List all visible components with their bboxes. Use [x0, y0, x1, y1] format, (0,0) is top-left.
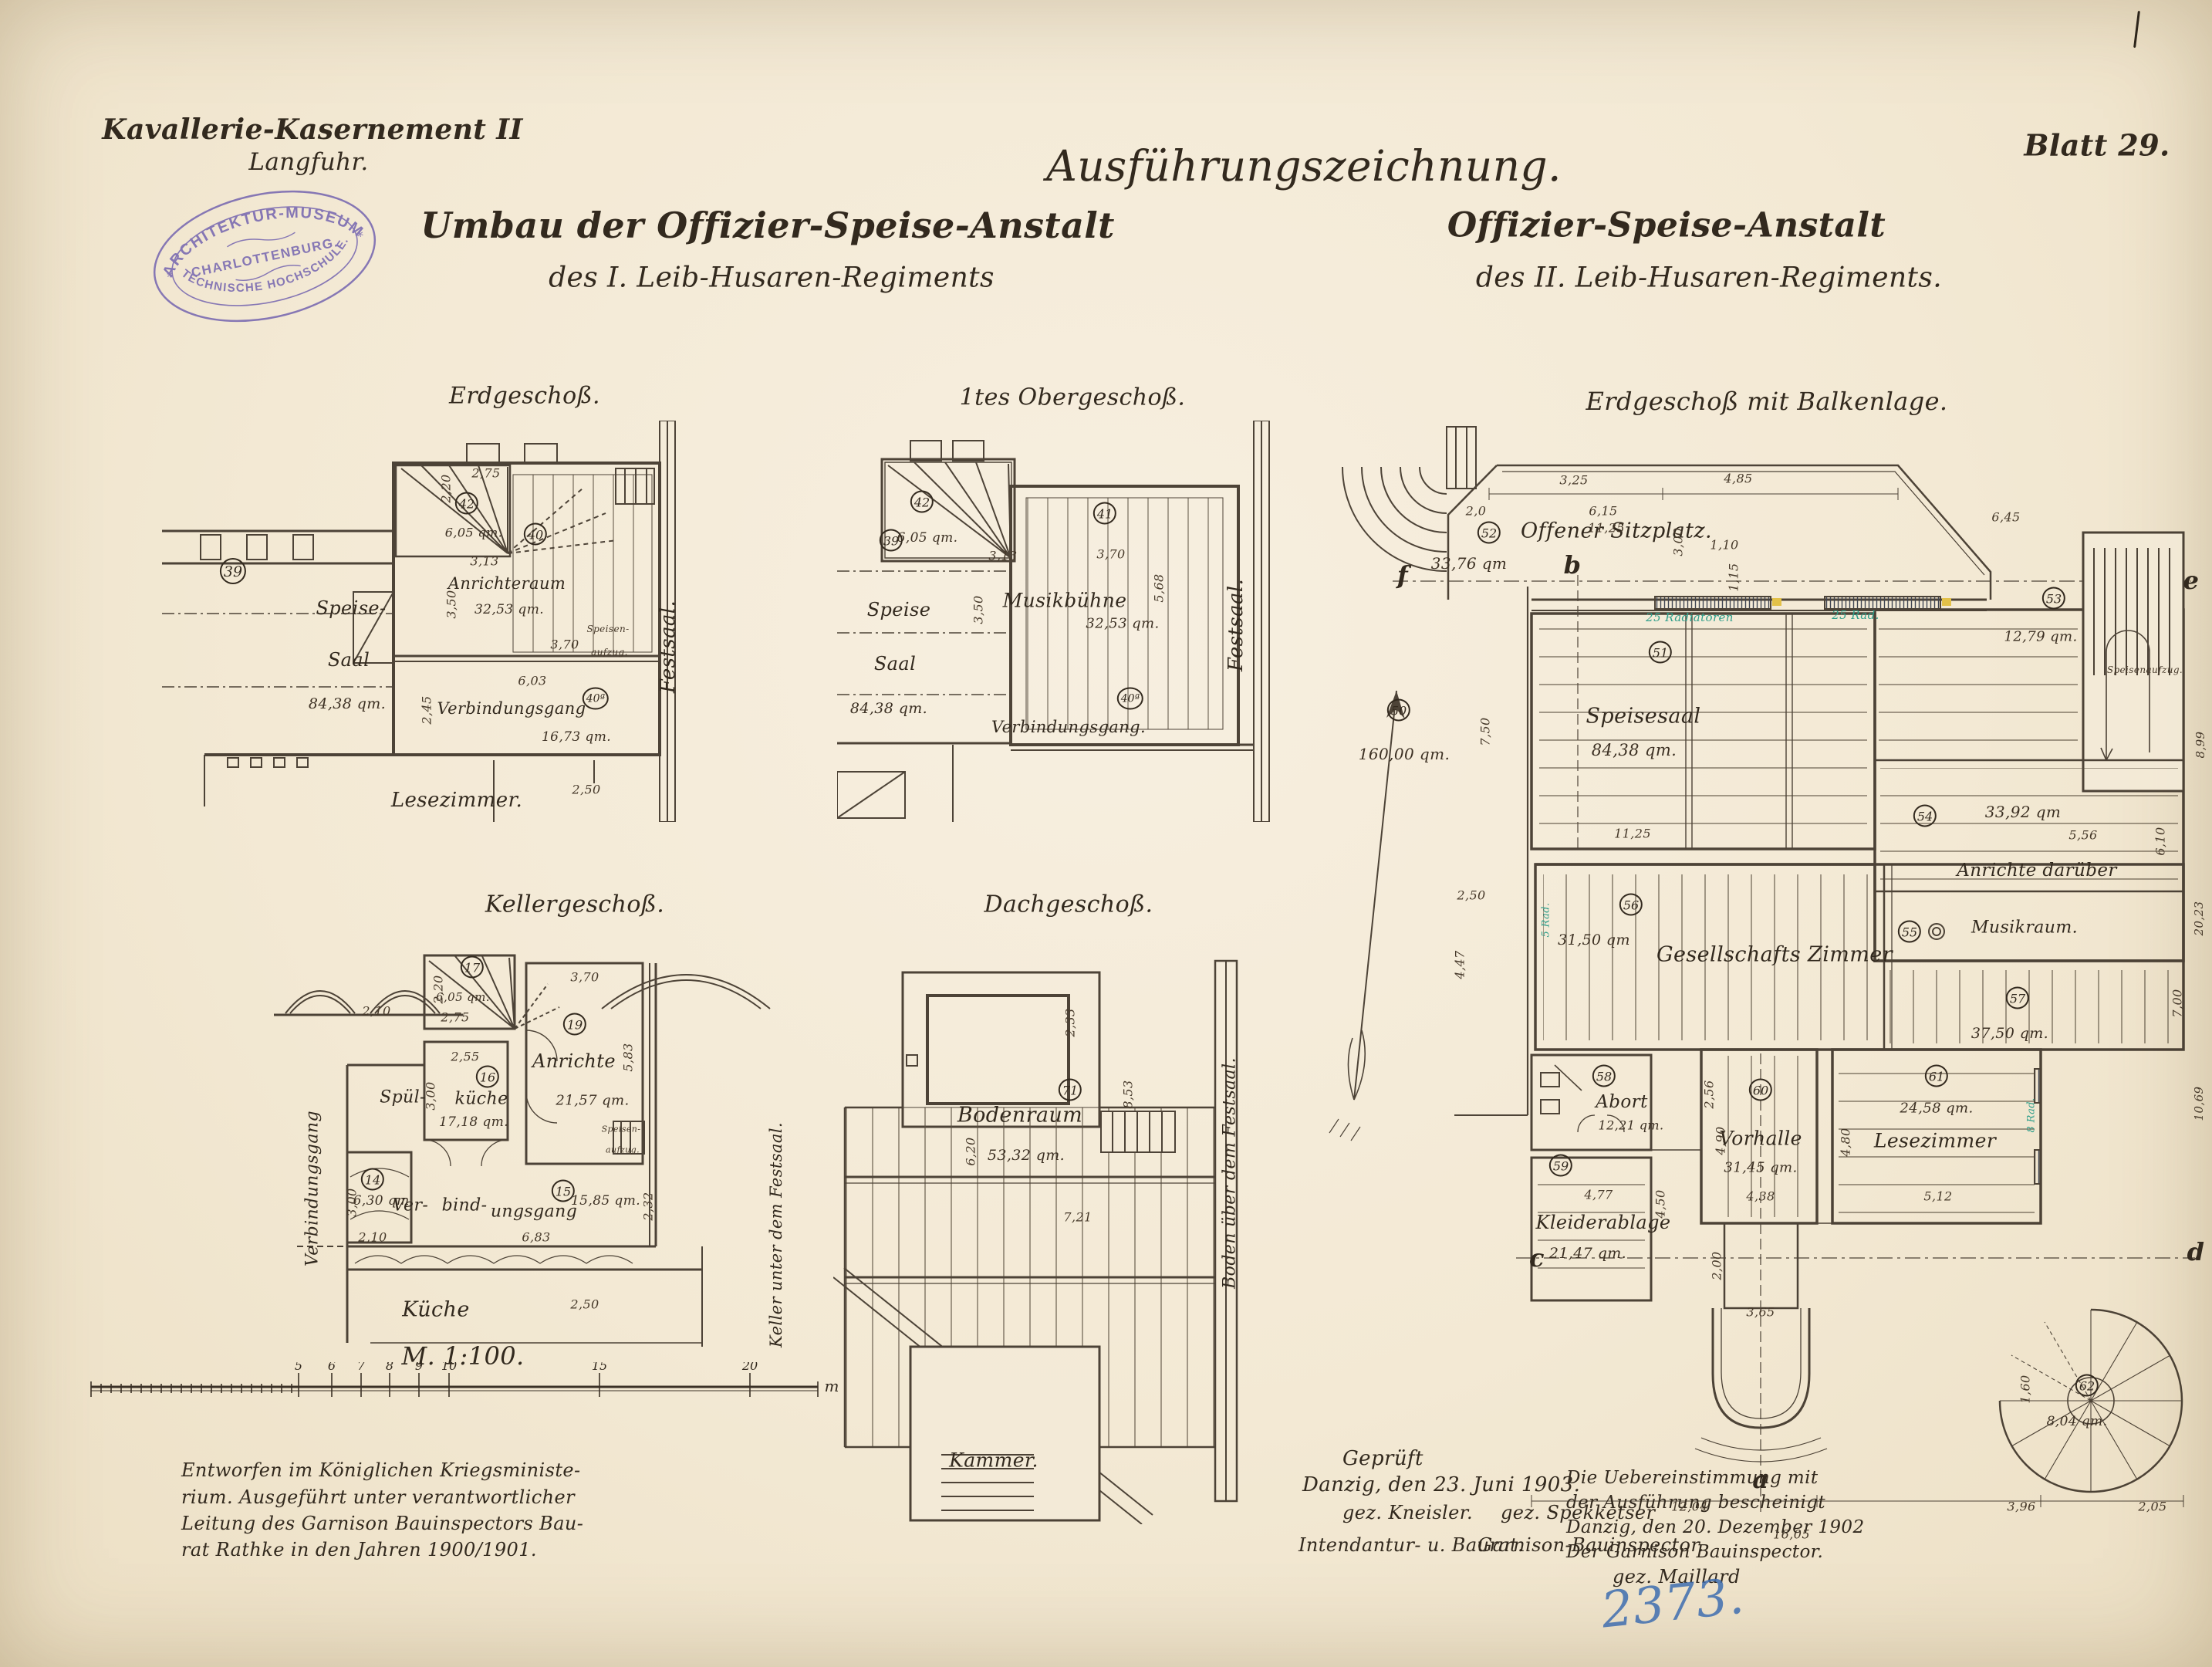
room-name: Kleiderablage	[1536, 1212, 1671, 1233]
room-area: 31,50 qm	[1558, 932, 1630, 948]
dimension: 2,10	[362, 1004, 390, 1019]
dimension: 3,00	[424, 1081, 438, 1110]
dimension: 2,20	[439, 474, 454, 502]
dimension: 3,50	[971, 595, 986, 624]
dimension: 1,15	[1727, 563, 1741, 591]
dimension: 3,70	[1096, 547, 1125, 562]
title-right-line2: des II. Leib-Husaren-Regiments.	[1476, 262, 1942, 294]
dimension: 2,05	[2138, 1500, 2166, 1514]
radiator-note: 8 Rad.	[2026, 1097, 2038, 1132]
section-letter-e: e	[2183, 566, 2200, 595]
dimension: 3,13	[988, 549, 1017, 563]
room-name: Gesellschafts Zimmer	[1656, 943, 1893, 967]
room-name: Speise-	[316, 597, 386, 619]
dimension: 2,50	[570, 1297, 599, 1312]
room-area: 6,05 qm.	[445, 526, 502, 540]
dimension: 4,38	[1746, 1189, 1775, 1204]
room-area: 8,04 qm.	[2047, 1414, 2108, 1429]
scale-unit: m	[825, 1377, 839, 1395]
certification-line1: Die Uebereinstimmung mit	[1566, 1468, 1819, 1488]
scale-bar: 5 6 7 8 9 10 15 20 m	[85, 1362, 849, 1408]
dimension: 6,03	[518, 674, 546, 688]
designed-note-line3: Leitung des Garnison Bauinspectors Bau-	[181, 1513, 583, 1534]
room-name: Musikraum.	[1971, 918, 2078, 938]
dimension: 3,96	[2007, 1500, 2035, 1514]
dimension: 3,13	[470, 554, 498, 569]
room-area: 84,38 qm.	[850, 700, 927, 717]
dimension: 2,0	[1466, 504, 1487, 519]
dimension: 2,33	[1063, 1008, 1078, 1036]
dimension: 6,45	[1991, 510, 2020, 525]
dimension: 6,15	[1589, 504, 1617, 519]
dimension: 3,00	[345, 1188, 360, 1216]
room-name: küche	[454, 1090, 508, 1109]
cellar-label-right: Keller unter dem Festsaal.	[767, 1122, 785, 1347]
certification-line2: der Ausführung bescheinigt	[1566, 1493, 1825, 1513]
title-right-line1: Offizier-Speise-Anstalt	[1447, 206, 1886, 245]
room-area: 17,18 qm.	[439, 1114, 508, 1130]
dimension: 3,70	[570, 970, 599, 985]
corridor-label: bind-	[442, 1196, 488, 1216]
room-label-kueche: Küche	[402, 1298, 469, 1322]
room-name: Saal	[328, 649, 370, 671]
radiator-note: 25 Radiatoren	[1646, 610, 1734, 624]
section-letter-d: d	[2187, 1237, 2205, 1266]
title-left-line1: Umbau der Offizier-Speise-Anstalt	[420, 205, 1115, 246]
dimension: 4,50	[1653, 1189, 1668, 1218]
room-name: Spül-	[380, 1088, 426, 1107]
room-area: 33,92 qm	[1985, 803, 2062, 821]
caption-balkenlage: Erdgeschoß mit Balkenlage.	[1586, 387, 1947, 416]
room-area: 12,21 qm.	[1599, 1118, 1664, 1133]
scale-tick: 7	[357, 1362, 366, 1373]
dimension: 20,23	[2192, 901, 2206, 936]
dimension: 8,99	[2193, 732, 2207, 759]
room-area: 24,58 qm.	[1900, 1101, 1973, 1117]
room-name: Vorhalle	[1719, 1128, 1802, 1150]
dimension: 2,50	[1457, 888, 1485, 903]
corridor-label: Verbindungsgang.	[991, 718, 1146, 736]
dimension: 10,69	[2192, 1087, 2206, 1121]
dimension: 1,60	[2018, 1375, 2033, 1403]
room-name: Speise	[867, 599, 931, 620]
dumbwaiter-label: Speisenaufzug.	[2107, 664, 2183, 675]
room-name: Anrichteraum	[448, 574, 566, 593]
scale-tick: 5	[295, 1362, 302, 1373]
dimension: 2,50	[572, 783, 600, 797]
dimension: 4,80	[1839, 1128, 1853, 1156]
dimension: 1,10	[1710, 538, 1738, 553]
room-name: Musikbühne	[1003, 590, 1127, 612]
dimension: 6,20	[964, 1137, 978, 1165]
certification-line4: Der Garnison Bauinspector.	[1566, 1542, 1823, 1562]
room-area: 53,32 qm.	[988, 1147, 1065, 1164]
drawing-sheet: Kavallerie-Kasernement II Langfuhr. Ausf…	[0, 0, 2212, 1667]
scale-tick: 6	[328, 1362, 336, 1373]
room-name: Bodenraum	[957, 1104, 1082, 1128]
museum-stamp: ARCHITEKTUR-MUSEUM CHARLOTTENBURG. TECHN…	[133, 164, 397, 350]
signature-1: gez. Kneisler.	[1342, 1502, 1473, 1523]
room-area: 33,76 qm	[1431, 554, 1508, 573]
caption-erdgeschoss: Erdgeschoß.	[449, 383, 600, 410]
section-letter-f: f	[1397, 560, 1408, 590]
dimension: 8,53	[1121, 1080, 1136, 1108]
attic-label-right: Boden über dem Festsaal.	[1221, 1057, 1240, 1289]
room-name: Verbindungsgang	[437, 699, 586, 718]
dimension: 6,83	[522, 1230, 550, 1245]
corridor-label-left: Verbindungsgang	[303, 1111, 323, 1266]
dumbwaiter-label: aufzug.	[606, 1145, 640, 1155]
room-area: 12,79 qm.	[2004, 629, 2077, 645]
corridor-label: ungsgang	[491, 1202, 577, 1222]
room-area: 37,50 qm.	[1971, 1025, 2048, 1042]
room-area: 84,38 qm.	[309, 695, 386, 712]
scale-tick: 10	[441, 1362, 457, 1373]
floorplan-obergeschoss	[837, 421, 1285, 822]
room-area: 6,05 qm.	[897, 530, 958, 546]
dimension: 7,00	[2170, 989, 2185, 1017]
dumbwaiter-label: Speisen-	[586, 624, 629, 634]
room-area: 15,85 qm.	[571, 1193, 640, 1209]
scale-tick: 15	[592, 1362, 607, 1373]
dimension: 5,56	[2068, 828, 2097, 843]
dimension: 2,45	[420, 695, 434, 724]
dimension: 3,25	[1559, 473, 1588, 488]
room-name: Lesezimmer	[1874, 1130, 1996, 1152]
room-label-kammer: Kammer.	[949, 1449, 1038, 1472]
dimension: 2,10	[358, 1230, 387, 1245]
room-area: 16,73 qm.	[542, 729, 611, 745]
designed-note-line2: rium. Ausgeführt unter verantwortlicher	[181, 1486, 575, 1508]
dimension: 7,21	[1063, 1210, 1092, 1225]
project-title: Kavallerie-Kasernement II	[102, 113, 522, 146]
dimension: 3,65	[1746, 1305, 1775, 1320]
room-area: 21,57 qm.	[556, 1093, 629, 1109]
dimension: 2,55	[451, 1050, 479, 1064]
dimension: 3,70	[550, 637, 579, 652]
room-name: Anrichte	[532, 1050, 616, 1072]
dimension: 4,85	[1724, 472, 1752, 486]
dumbwaiter-label: aufzug.	[591, 647, 628, 658]
dimension: 5,68	[1152, 573, 1167, 602]
room-number: 39	[220, 558, 246, 584]
ink-mark	[2133, 11, 2140, 48]
dimension: 11,25	[1588, 521, 1625, 536]
room-name: Abort	[1596, 1092, 1647, 1112]
room-name: Saal	[874, 653, 916, 675]
scale-tick: 8	[386, 1362, 393, 1373]
room-area: 84,38 qm.	[1592, 741, 1677, 759]
room-name: Speisesaal	[1586, 705, 1701, 729]
room-area: 160,00 qm.	[1359, 745, 1450, 763]
room-area: 31,45 qm.	[1724, 1160, 1797, 1176]
dimension: 5,83	[621, 1043, 636, 1071]
designed-note-line1: Entworfen im Königlichen Kriegsministe-	[181, 1459, 581, 1481]
sheet-number: Blatt 29.	[2024, 128, 2170, 163]
dimension: 6,10	[2153, 827, 2168, 855]
dimension: 3,00	[1671, 527, 1686, 556]
drawing-type-title: Ausführungszeichnung.	[1046, 141, 1562, 191]
room-area: 21,47 qm.	[1549, 1245, 1626, 1262]
dimension: 4,47	[1453, 950, 1467, 979]
room-label-festsaal: Festsaal.	[1224, 579, 1248, 671]
room-label-festsaal: Festsaal.	[657, 600, 680, 693]
dimension: 3,50	[444, 590, 459, 618]
dimension: 2,32	[641, 1192, 656, 1220]
approval-date: Danzig, den 23. Juni 1903.	[1302, 1473, 1580, 1496]
dimension: 11,25	[1614, 827, 1651, 841]
dimension: 2,56	[1702, 1080, 1717, 1108]
section-letter-b: b	[1564, 550, 1582, 580]
dimension: 2,00	[1710, 1251, 1724, 1280]
corridor-label: Ver-	[393, 1196, 428, 1216]
radiator-note: 5 Rad.	[1541, 902, 1552, 937]
dimension: 2,75	[471, 466, 500, 481]
dumbwaiter-label: Speisen-	[602, 1124, 641, 1134]
scale-tick: 9	[415, 1362, 423, 1373]
dimension: 2,20	[431, 975, 446, 1003]
dimension: 2,75	[441, 1010, 469, 1025]
room-area: 32,53 qm.	[474, 602, 544, 617]
scale-tick: 20	[741, 1362, 758, 1373]
dimension: 4,90	[1714, 1126, 1728, 1155]
certification-line3: Danzig, den 20. Dezember 1902	[1566, 1517, 1865, 1537]
floorplan-erdgeschoss	[162, 421, 694, 822]
caption-obergeschoss: 1tes Obergeschoß.	[960, 384, 1186, 411]
section-letter-c: c	[1529, 1243, 1545, 1273]
radiator-note: 25 Rad.	[1832, 608, 1879, 622]
room-label-lesezimmer: Lesezimmer.	[391, 789, 522, 812]
designed-note-line4: rat Rathke in den Jahren 1900/1901.	[181, 1539, 537, 1560]
dimension: 7,50	[1478, 717, 1493, 746]
dimension: 5,12	[1923, 1189, 1952, 1204]
room-name: Anrichte darüber	[1957, 861, 2117, 881]
approval-title: Geprüft	[1342, 1447, 1423, 1470]
title-left-line2: des I. Leib-Husaren-Regiments	[549, 262, 995, 294]
dimension: 4,77	[1584, 1188, 1613, 1202]
room-area: 32,53 qm.	[1086, 616, 1159, 632]
